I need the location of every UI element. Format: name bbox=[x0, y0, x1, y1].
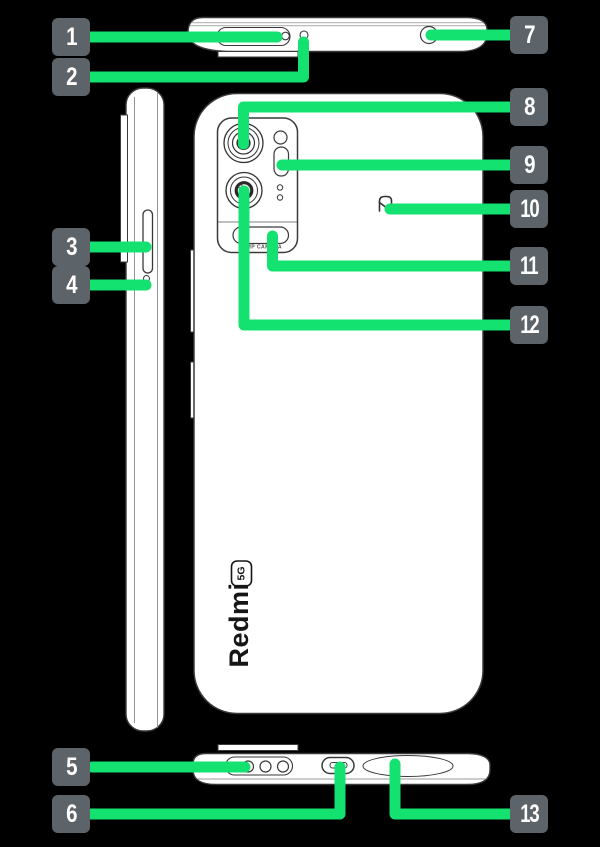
callout-badge-13-label: 13 bbox=[520, 800, 538, 829]
sensor-dot-2 bbox=[277, 195, 282, 200]
camera-module: 48MP CAMERA bbox=[218, 118, 298, 253]
callout-badge-4-label: 4 bbox=[66, 271, 77, 300]
callout-badge-7-label: 7 bbox=[524, 21, 535, 50]
callout-badge-1: 1 bbox=[52, 18, 90, 56]
callout-badge-8: 8 bbox=[510, 88, 548, 126]
callout-badge-6-label: 6 bbox=[66, 800, 77, 829]
badge-5g-text: 5G bbox=[236, 566, 248, 580]
callout-badge-2-label: 2 bbox=[66, 63, 77, 92]
back-view: 48MP CAMERA 5G Redmi bbox=[191, 94, 484, 714]
callout-badge-12: 12 bbox=[510, 306, 548, 344]
callout-badge-5-label: 5 bbox=[66, 753, 77, 782]
callout-badge-9: 9 bbox=[510, 146, 548, 184]
callout-badge-5: 5 bbox=[52, 748, 90, 786]
callout-badge-1-label: 1 bbox=[66, 23, 77, 52]
callout-badge-11: 11 bbox=[510, 247, 548, 285]
callout-badge-10: 10 bbox=[510, 190, 548, 228]
device-diagram: 48MP CAMERA 5G Redmi bbox=[0, 0, 600, 847]
callout-badge-10-label: 10 bbox=[520, 195, 538, 224]
callout-badge-12-label: 12 bbox=[520, 311, 538, 340]
callout-badge-7: 7 bbox=[510, 16, 548, 54]
callout-badge-11-label: 11 bbox=[520, 252, 537, 281]
speaker-hole-3 bbox=[278, 761, 289, 772]
side-body bbox=[126, 88, 164, 731]
callout-badge-2: 2 bbox=[52, 58, 90, 96]
brand-logo-text: Redmi bbox=[224, 582, 254, 667]
device-parts-diagram-page: 48MP CAMERA 5G Redmi bbox=[0, 0, 600, 847]
callout-badge-9-label: 9 bbox=[524, 151, 535, 180]
top-screen-edge-tab bbox=[218, 52, 298, 58]
callout-badge-6: 6 bbox=[52, 795, 90, 833]
sensor-dot-1 bbox=[277, 185, 282, 190]
speaker-hole-2 bbox=[260, 761, 271, 772]
callout-badge-8-label: 8 bbox=[524, 93, 535, 122]
callout-badge-13: 13 bbox=[510, 795, 548, 833]
depth-sensor bbox=[274, 131, 287, 144]
callout-badge-4: 4 bbox=[52, 266, 90, 304]
callout-badge-3: 3 bbox=[52, 228, 90, 266]
ir-blaster-hole bbox=[282, 32, 290, 40]
callout-badge-3-label: 3 bbox=[66, 233, 77, 262]
side-edge-view bbox=[121, 88, 165, 731]
side-screen-edge-strip bbox=[121, 115, 128, 262]
bottom-screen-edge-tab bbox=[218, 745, 298, 751]
